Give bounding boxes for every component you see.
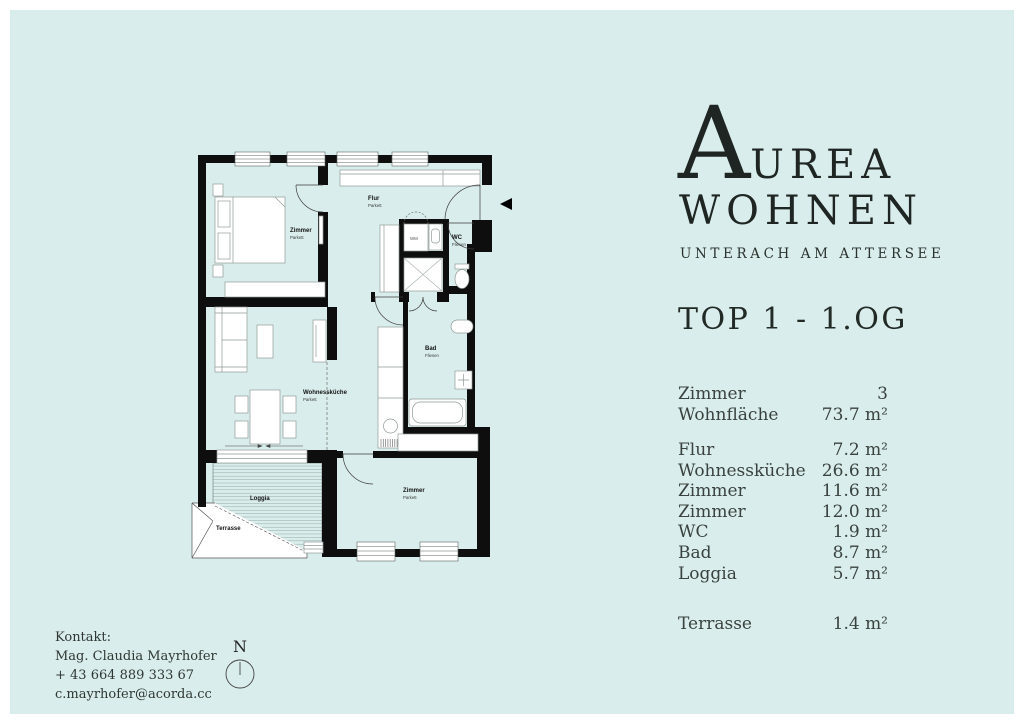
loggia-threshold [304,542,323,553]
area-row-label: Zimmer [678,481,746,502]
brand-rest: UREA [750,142,896,188]
area-row-label: Zimmer [678,502,746,523]
compass-north-label: N [233,637,247,656]
unit-title: TOP 1 - 1.OG [678,302,908,337]
area-row-label: Wohnessküche [678,461,806,482]
area-row-value: 1.4 m² [833,614,888,635]
room-material-living: Parkett [303,397,317,402]
room-label-wc: WC [452,235,463,241]
door-arc-hall [375,297,403,325]
radiator [319,216,323,244]
area-row-label: Flur [678,440,714,461]
area-row: Zimmer12.0 m² [678,502,888,523]
compass-icon: N [210,630,270,696]
area-row-value: 1.9 m² [833,522,888,543]
contact-heading: Kontakt: [55,628,217,647]
outdoor-areas-table: Terrasse1.4 m² [678,614,888,635]
area-row: Wohnessküche26.6 m² [678,461,888,482]
area-row-value: 73.7 m² [822,405,888,426]
area-row-label: Terrasse [678,614,752,635]
room-label-bedroom2: Zimmer [403,488,425,494]
area-row: Zimmer11.6 m² [678,481,888,502]
door-arc-bedroom2 [343,454,373,484]
room-material-bedroom2: Parkett [403,495,417,500]
room-label-bad: Bad [425,346,437,352]
toilet [455,264,469,289]
room-material-wc: Fliesen [452,242,466,247]
room-material-flur: Parkett [368,203,382,208]
room-label-terrace: Terrasse [216,526,241,532]
sofa [215,307,247,372]
room-label-loggia: Loggia [250,496,270,502]
brand-line2: WOHNEN [679,188,923,234]
area-row-value: 26.6 m² [822,461,888,482]
area-row-label: Wohnfläche [678,405,778,426]
floor-plan: Zimmer Parkett Flur Parkett WM WC Fliese… [185,140,520,580]
area-row-label: Loggia [678,564,737,585]
brochure-canvas: Zimmer Parkett Flur Parkett WM WC Fliese… [10,10,1014,714]
brand-tagline: UNTERACH AM ATTERSEE [680,246,944,262]
towel-radiator [451,320,473,333]
bedroom2-wardrobe [398,434,478,451]
area-row: Loggia5.7 m² [678,564,888,585]
area-row: Bad8.7 m² [678,543,888,564]
nightstand [213,184,223,196]
contact-name: Mag. Claudia Mayrhofer [55,647,217,666]
area-row: WC1.9 m² [678,522,888,543]
chair [283,421,296,438]
area-row-value: 5.7 m² [833,564,888,585]
room-material-bedroom1: Parkett [290,235,304,240]
door-arc-bath [409,297,437,311]
contact-phone: + 43 664 889 333 67 [55,666,217,685]
area-row-value: 12.0 m² [822,502,888,523]
brand-logo: AUREA [678,98,896,190]
room-label-bedroom1: Zimmer [290,228,312,234]
area-row-value: 3 [877,384,888,405]
area-row-value: 7.2 m² [833,440,888,461]
living-wardrobe [313,320,326,362]
room-label-flur: Flur [368,196,380,202]
label-wm: WM [410,236,418,241]
area-row-label: Zimmer [678,384,746,405]
flur-wardrobe [340,170,480,186]
door-arc-bedroom1 [296,185,323,212]
area-row: Zimmer3 [678,384,888,405]
shower [404,258,442,291]
area-row: Wohnfläche73.7 m² [678,405,888,426]
area-row: Flur7.2 m² [678,440,888,461]
small-sink [429,224,442,250]
door-arc-entrance [445,185,480,220]
contact-block: Kontakt: Mag. Claudia Mayrhofer + 43 664… [55,628,217,704]
room-label-living: Wohnessküche [303,390,348,396]
brand-initial: A [678,85,750,202]
room-areas-table: Flur7.2 m²Wohnessküche26.6 m²Zimmer11.6 … [678,440,888,584]
room-material-bad: Fliesen [425,353,439,358]
bathtub [409,399,466,426]
page: Zimmer Parkett Flur Parkett WM WC Fliese… [0,0,1024,724]
entrance-arrow-icon [500,198,512,210]
coffee-table [257,325,273,358]
hall-cabinet [380,225,399,292]
area-row-label: Bad [678,543,712,564]
chair [235,421,248,438]
contact-email: c.mayrhofer@acorda.cc [55,685,217,704]
area-row-value: 11.6 m² [822,481,888,502]
chair [235,396,248,413]
bedroom-wardrobe [225,282,325,297]
dining-table [250,390,280,444]
slide-arrows-icon [225,445,303,448]
summary-table: Zimmer3Wohnfläche73.7 m² [678,384,888,425]
area-row: Terrasse1.4 m² [678,614,888,635]
nightstand [213,265,223,277]
washbasin [455,371,472,389]
chair [283,396,296,413]
sliding-window [217,450,307,463]
kitchen-counter [378,327,403,448]
area-row-value: 8.7 m² [833,543,888,564]
area-row-label: WC [678,522,708,543]
bed [215,197,285,263]
